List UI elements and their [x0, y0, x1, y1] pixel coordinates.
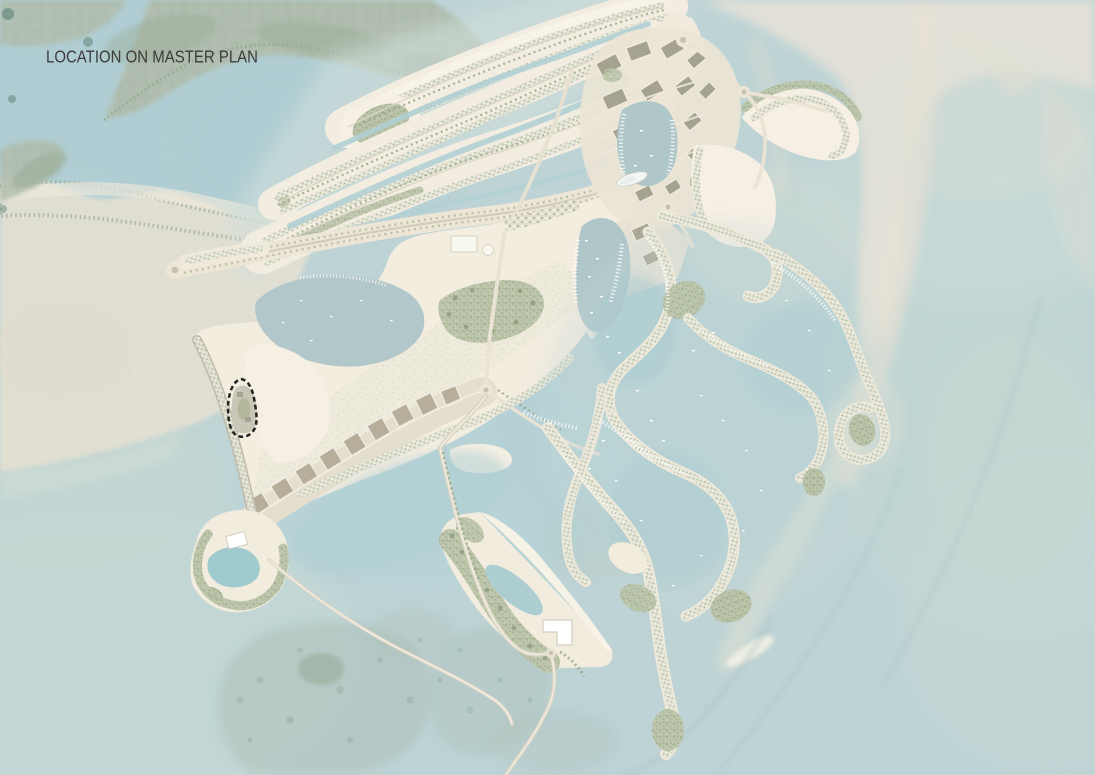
svg-text:LOCATION ON MASTER PLAN: LOCATION ON MASTER PLAN [46, 47, 258, 67]
